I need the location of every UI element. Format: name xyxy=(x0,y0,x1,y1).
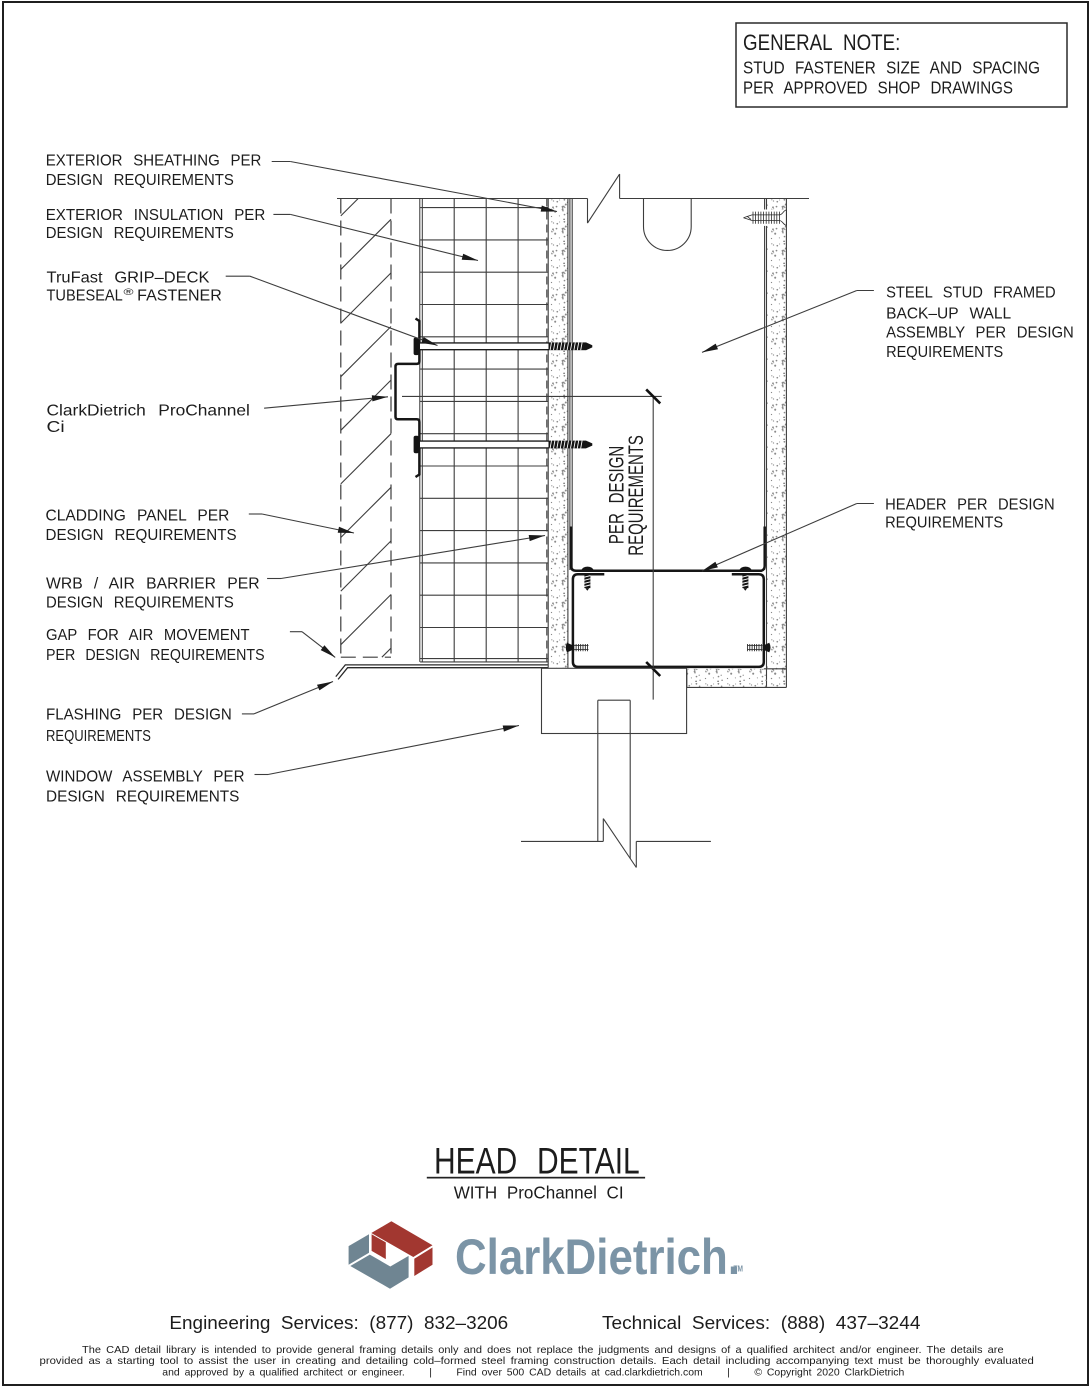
svg-text:REQUIREMENTS: REQUIREMENTS xyxy=(886,344,1003,361)
svg-text:ASSEMBLY PER DESIGN: ASSEMBLY PER DESIGN xyxy=(886,325,1074,342)
svg-text:FASTENER: FASTENER xyxy=(137,288,222,305)
svg-text:HEAD DETAIL: HEAD DETAIL xyxy=(434,1140,640,1181)
svg-text:Ci: Ci xyxy=(47,419,65,436)
svg-text:The CAD detail library is inte: The CAD detail library is intended to pr… xyxy=(82,1344,1004,1356)
svg-text:Engineering Services: (877) 83: Engineering Services: (877) 832–3206 xyxy=(169,1313,508,1333)
svg-text:DESIGN REQUIREMENTS: DESIGN REQUIREMENTS xyxy=(46,172,234,189)
svg-text:EXTERIOR SHEATHING PER: EXTERIOR SHEATHING PER xyxy=(46,152,262,169)
svg-text:REQUIREMENTS: REQUIREMENTS xyxy=(885,514,1003,531)
svg-text:PER DESIGN REQUIREMENTS: PER DESIGN REQUIREMENTS xyxy=(46,647,265,664)
svg-text:TM: TM xyxy=(734,1265,744,1274)
svg-text:REQUIREMENTS: REQUIREMENTS xyxy=(46,728,151,745)
svg-text:STEEL STUD FRAMED: STEEL STUD FRAMED xyxy=(886,284,1056,301)
svg-text:DESIGN REQUIREMENTS: DESIGN REQUIREMENTS xyxy=(46,225,234,242)
svg-text:STUD FASTENER SIZE AND SPACING: STUD FASTENER SIZE AND SPACING xyxy=(743,57,1040,77)
svg-text:TruFast GRIP–DECK: TruFast GRIP–DECK xyxy=(47,270,210,287)
svg-text:CLADDING PANEL PER: CLADDING PANEL PER xyxy=(46,507,230,524)
svg-text:GENERAL NOTE:: GENERAL NOTE: xyxy=(743,30,900,55)
svg-text:PER APPROVED SHOP DRAWINGS: PER APPROVED SHOP DRAWINGS xyxy=(743,78,1013,98)
svg-text:ClarkDietrich ProChannel: ClarkDietrich ProChannel xyxy=(47,403,250,420)
svg-text:BACK–UP WALL: BACK–UP WALL xyxy=(886,306,1011,323)
svg-text:DESIGN REQUIREMENTS: DESIGN REQUIREMENTS xyxy=(46,527,237,544)
svg-text:WITH ProChannel CI: WITH ProChannel CI xyxy=(454,1182,624,1202)
svg-text:®: ® xyxy=(124,287,135,297)
svg-text:TUBESEAL: TUBESEAL xyxy=(47,288,123,305)
svg-text:ClarkDietrich.: ClarkDietrich. xyxy=(455,1229,740,1285)
svg-text:EXTERIOR INSULATION PER: EXTERIOR INSULATION PER xyxy=(46,207,266,224)
svg-text:WINDOW ASSEMBLY PER: WINDOW ASSEMBLY PER xyxy=(46,768,245,785)
svg-text:provided as a starting tool to: provided as a starting tool to assist th… xyxy=(40,1355,1034,1367)
svg-text:FLASHING PER DESIGN: FLASHING PER DESIGN xyxy=(46,707,232,724)
svg-text:Technical Services: (888) 437–: Technical Services: (888) 437–3244 xyxy=(602,1313,920,1333)
svg-text:GAP FOR AIR MOVEMENT: GAP FOR AIR MOVEMENT xyxy=(46,627,250,644)
svg-text:DESIGN REQUIREMENTS: DESIGN REQUIREMENTS xyxy=(46,789,239,806)
svg-text:HEADER PER DESIGN: HEADER PER DESIGN xyxy=(885,496,1055,513)
svg-text:DESIGN REQUIREMENTS: DESIGN REQUIREMENTS xyxy=(46,595,234,612)
svg-text:REQUIREMENTS: REQUIREMENTS xyxy=(624,435,648,556)
svg-text:and approved by a qualified ar: and approved by a qualified architect or… xyxy=(162,1366,904,1378)
svg-text:WRB / AIR BARRIER PER: WRB / AIR BARRIER PER xyxy=(46,576,260,593)
